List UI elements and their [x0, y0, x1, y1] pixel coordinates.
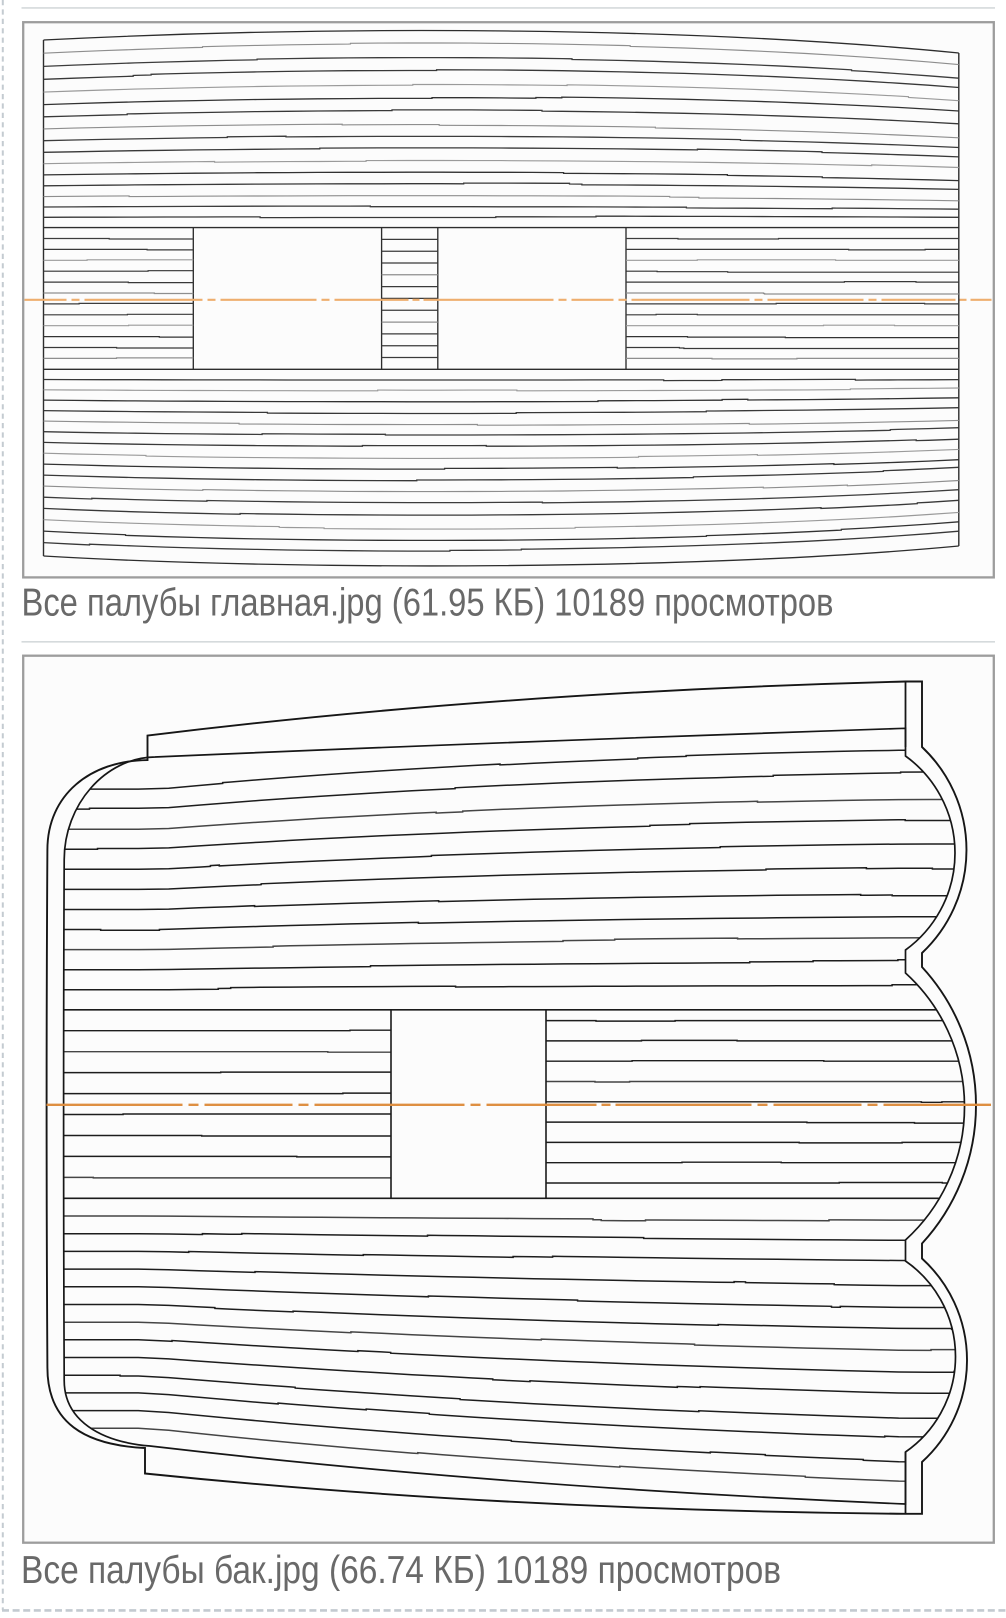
svg-text:Все палубы главная.jpg (61.95: Все палубы главная.jpg (61.95 КБ) 10189 …: [22, 582, 834, 625]
svg-text:Все палубы бак.jpg (66.74 КБ): Все палубы бак.jpg (66.74 КБ) 10189 прос…: [21, 1549, 781, 1592]
